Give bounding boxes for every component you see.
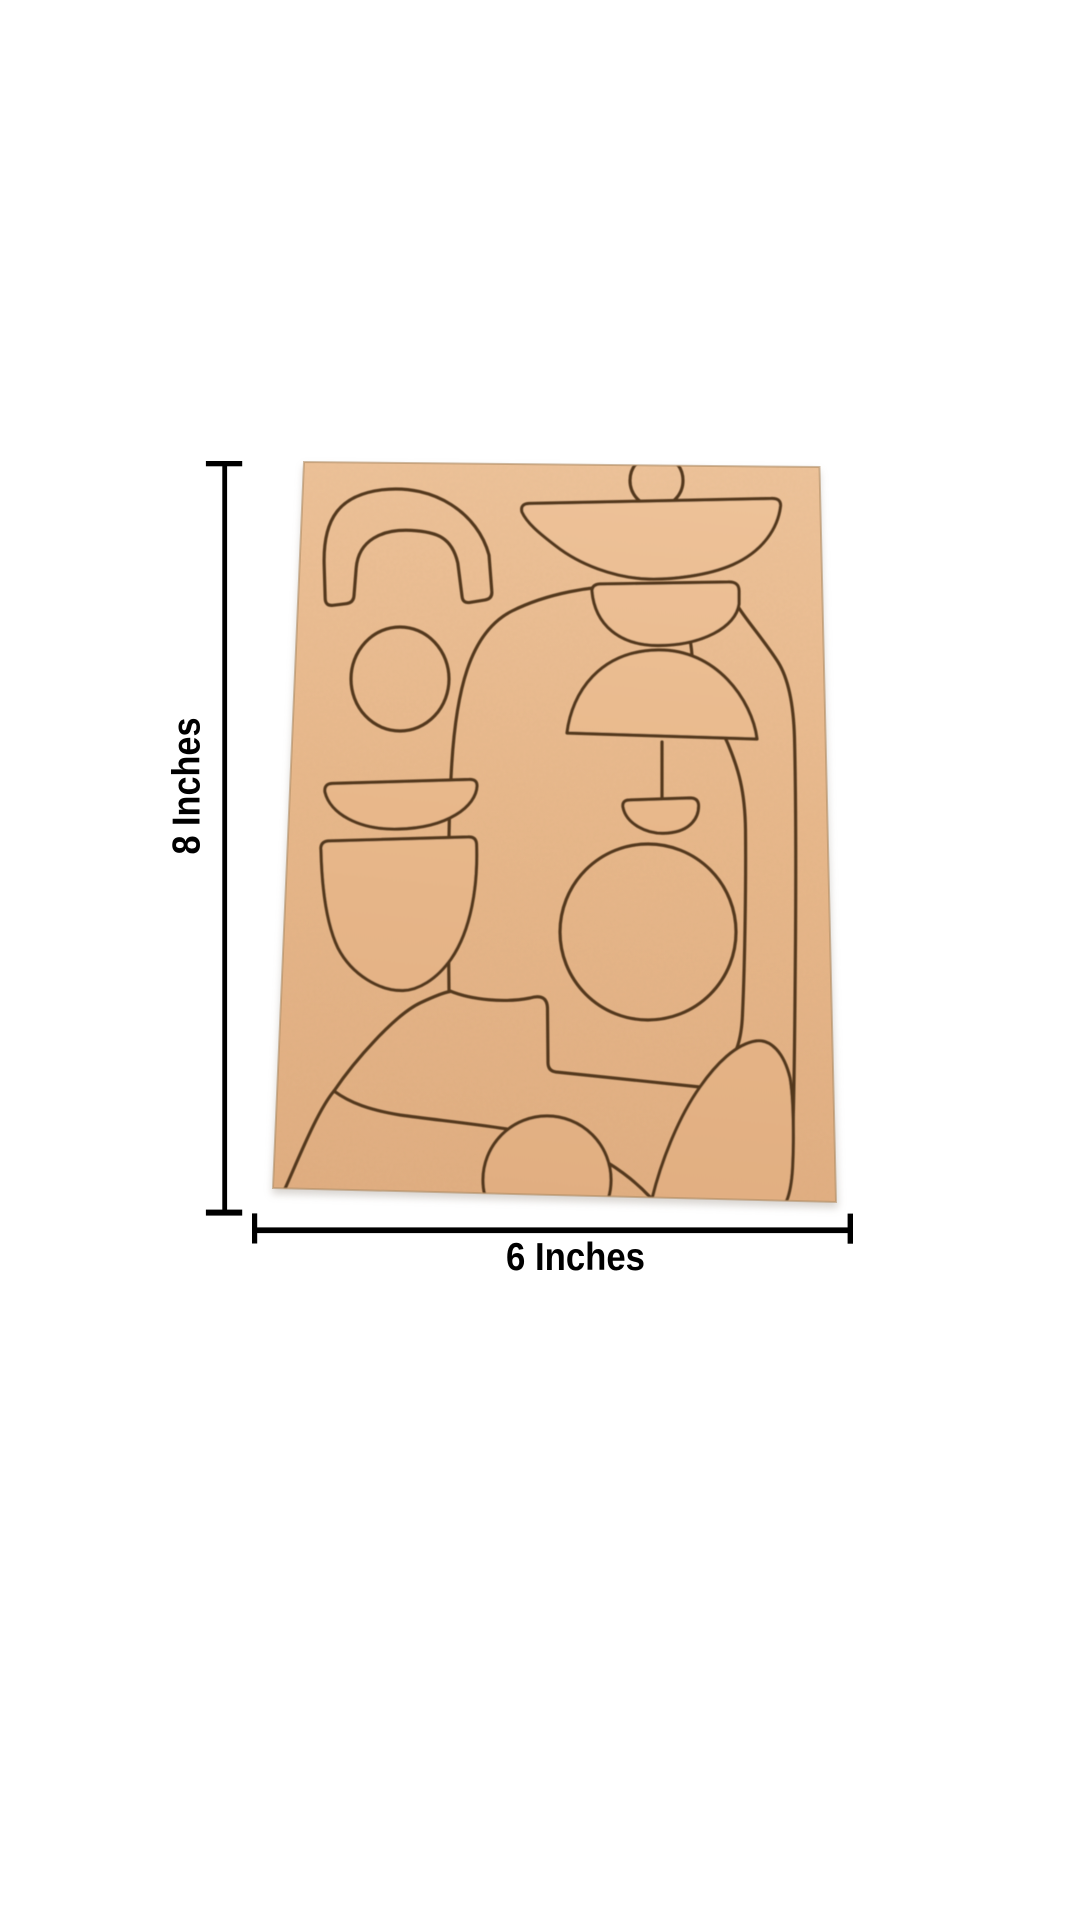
svg-text:8 Inches: 8 Inches bbox=[166, 718, 209, 855]
svg-text:6 Inches: 6 Inches bbox=[506, 1236, 645, 1279]
